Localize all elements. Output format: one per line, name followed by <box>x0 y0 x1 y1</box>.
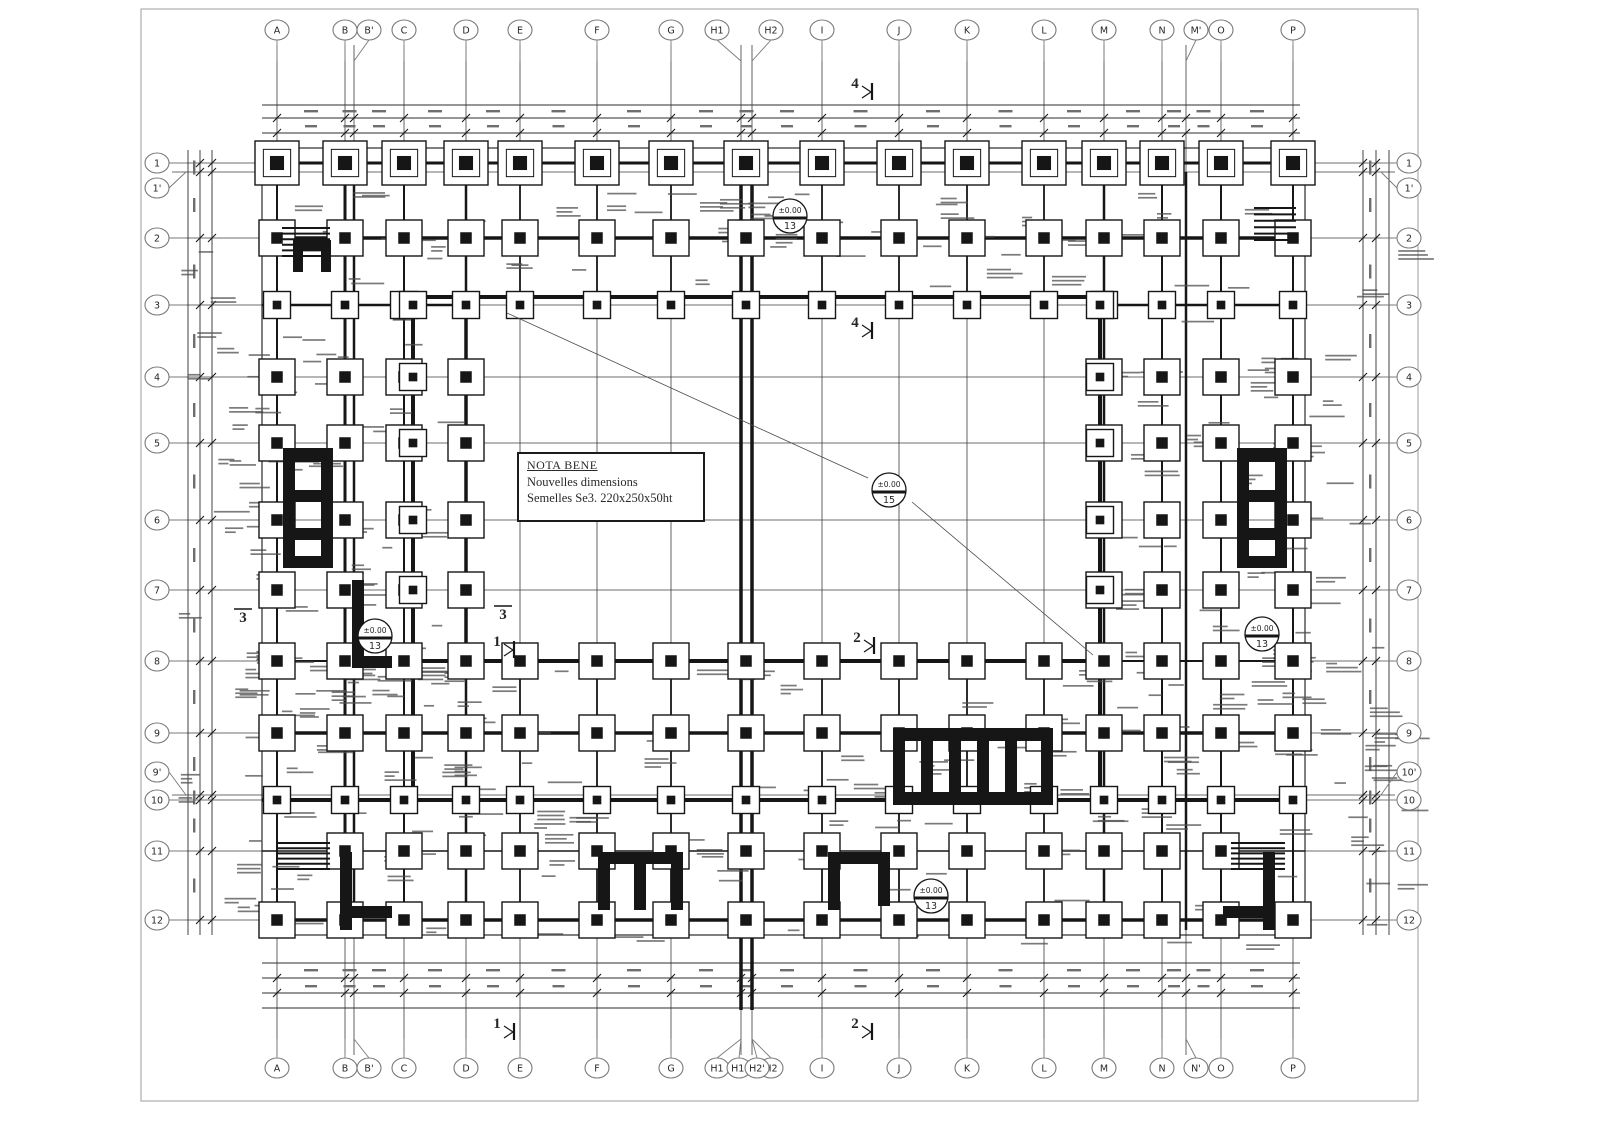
micro-annotation <box>382 547 392 549</box>
micro-annotation <box>245 775 263 777</box>
dimension-value-mark <box>373 985 385 987</box>
micro-annotation <box>1261 358 1275 360</box>
micro-annotation <box>1302 702 1326 704</box>
micro-annotation <box>781 693 791 695</box>
column-stub <box>409 301 418 310</box>
grid-bubble-label: E <box>517 1064 523 1075</box>
micro-annotation <box>297 879 309 881</box>
micro-annotation <box>225 531 236 533</box>
micro-annotation <box>352 568 371 570</box>
column-stub <box>1040 301 1049 310</box>
micro-annotation <box>887 889 911 891</box>
column-stub <box>1156 437 1168 449</box>
micro-annotation <box>1258 703 1294 705</box>
section-marker-label: 1 <box>493 1016 501 1032</box>
micro-annotation <box>1138 193 1155 195</box>
grid-bubble-label: 9 <box>1406 729 1412 740</box>
micro-annotation <box>1138 197 1157 199</box>
micro-annotation <box>1280 833 1313 835</box>
core-wall <box>598 852 683 864</box>
micro-annotation <box>1052 280 1084 282</box>
micro-annotation <box>295 209 322 211</box>
micro-annotation <box>1168 684 1183 686</box>
micro-annotation <box>1398 258 1434 260</box>
micro-annotation <box>770 246 786 248</box>
micro-annotation <box>1213 708 1245 710</box>
column-stub <box>739 156 753 170</box>
grid-bubble-label: E <box>517 26 523 37</box>
micro-annotation <box>1177 773 1200 775</box>
micro-annotation <box>1052 284 1081 286</box>
micro-annotation <box>1175 285 1210 287</box>
column-stub <box>409 439 418 448</box>
micro-annotation <box>1348 816 1367 818</box>
grid-bubble-label: A <box>274 1064 281 1075</box>
micro-annotation <box>1139 546 1161 548</box>
column-stub <box>398 727 410 739</box>
micro-annotation <box>235 692 257 694</box>
column-stub <box>1287 514 1299 526</box>
core-wall <box>321 250 331 272</box>
section-marker-label: 1 <box>493 634 501 650</box>
micro-annotation <box>332 695 355 697</box>
column-stub <box>1096 516 1105 525</box>
micro-annotation <box>700 210 734 212</box>
micro-annotation <box>225 902 239 904</box>
micro-annotation <box>1145 475 1180 477</box>
grid-bubble-label: 1' <box>1405 184 1414 195</box>
column-stub <box>409 373 418 382</box>
column-stub <box>1215 232 1227 244</box>
grid-bubble-label: 10' <box>1402 768 1417 779</box>
micro-annotation <box>829 820 848 822</box>
micro-annotation <box>1261 362 1274 364</box>
column-stub <box>271 914 283 926</box>
grid-bubble-label: K <box>964 1064 971 1075</box>
micro-annotation <box>1228 287 1250 289</box>
micro-annotation <box>700 202 727 204</box>
micro-annotation <box>1370 715 1403 717</box>
dimension-value-mark <box>927 985 939 987</box>
level-marker-value: ±0.00 <box>1251 624 1274 633</box>
column-stub <box>271 655 283 667</box>
micro-annotation <box>549 860 575 862</box>
grid-bubble-label: 7 <box>1406 586 1412 597</box>
dimension-value-mark <box>1369 757 1371 771</box>
micro-annotation <box>1187 439 1198 441</box>
micro-annotation <box>875 827 900 829</box>
micro-annotation <box>1350 523 1371 525</box>
micro-annotation <box>431 683 449 685</box>
micro-annotation <box>1278 876 1297 878</box>
micro-annotation <box>1275 753 1302 755</box>
column-stub <box>895 301 904 310</box>
micro-annotation <box>925 823 953 825</box>
column-stub <box>591 232 603 244</box>
micro-annotation <box>1398 250 1425 252</box>
column-stub <box>273 796 282 805</box>
grid-bubble-label: 6 <box>1406 516 1412 527</box>
micro-annotation <box>385 779 417 781</box>
micro-annotation <box>385 771 399 773</box>
micro-annotation <box>179 613 190 615</box>
micro-annotation <box>1177 769 1193 771</box>
dimension-value-mark <box>193 403 195 417</box>
micro-annotation <box>445 680 466 682</box>
micro-annotation <box>181 778 192 780</box>
dimension-value-mark <box>1126 969 1140 971</box>
column-stub <box>1214 156 1228 170</box>
grid-bubble-label: M <box>1100 26 1108 37</box>
section-marker-label: 2 <box>851 1016 859 1032</box>
core-wall <box>893 792 1053 805</box>
column-stub <box>1038 655 1050 667</box>
dimension-value-mark <box>699 969 713 971</box>
column-stub <box>460 655 472 667</box>
grid-bubble-label: H2' <box>749 1064 765 1075</box>
micro-annotation <box>393 319 411 321</box>
core-wall <box>1249 528 1275 540</box>
bubble-leader <box>354 1039 369 1058</box>
dimension-value-mark <box>344 125 356 127</box>
dimension-value-mark <box>999 969 1013 971</box>
micro-annotation <box>1060 793 1089 795</box>
micro-annotation <box>318 751 353 753</box>
micro-annotation <box>537 815 563 817</box>
micro-annotation <box>941 198 957 200</box>
column-stub <box>591 914 603 926</box>
column-stub <box>514 727 526 739</box>
micro-annotation <box>645 762 677 764</box>
core-wall <box>828 864 840 910</box>
column-stub <box>816 232 828 244</box>
column-stub <box>1215 437 1227 449</box>
micro-annotation <box>1213 626 1228 628</box>
level-marker-number: 13 <box>925 901 937 912</box>
micro-annotation <box>545 842 574 844</box>
micro-annotation <box>492 686 516 688</box>
column-stub <box>1215 655 1227 667</box>
micro-annotation <box>702 856 723 858</box>
micro-annotation <box>697 669 728 671</box>
core-wall <box>293 250 303 272</box>
dimension-value-mark <box>372 110 386 112</box>
section-flag-icon <box>862 86 871 98</box>
core-wall <box>949 740 961 792</box>
micro-annotation <box>1060 789 1082 791</box>
micro-annotation <box>1209 422 1230 424</box>
micro-annotation <box>181 782 193 784</box>
grid-bubble-label: L <box>1041 26 1047 37</box>
micro-annotation <box>542 875 556 877</box>
dimension-value-mark <box>741 125 753 127</box>
dimension-value-mark <box>627 969 641 971</box>
grid-bubble-label: G <box>667 26 674 37</box>
leader-line <box>912 502 1093 655</box>
micro-annotation <box>431 246 446 248</box>
micro-annotation <box>405 344 422 346</box>
micro-annotation <box>284 816 316 818</box>
micro-annotation <box>181 270 198 272</box>
core-wall <box>1005 740 1017 792</box>
micro-annotation <box>690 839 705 841</box>
dimension-value-mark <box>780 110 794 112</box>
micro-annotation <box>1362 289 1377 291</box>
micro-annotation <box>1370 707 1388 709</box>
column-stub <box>740 914 752 926</box>
micro-annotation <box>225 527 243 529</box>
column-stub <box>1156 514 1168 526</box>
dimension-value-mark <box>999 110 1013 112</box>
micro-annotation <box>300 708 330 710</box>
micro-annotation <box>1157 217 1168 219</box>
micro-annotation <box>1252 685 1288 687</box>
grid-bubble-label: G <box>667 1064 674 1075</box>
micro-annotation <box>1164 757 1199 759</box>
column-stub <box>271 584 283 596</box>
micro-annotation <box>390 408 403 410</box>
dimension-value-mark <box>854 969 868 971</box>
micro-annotation <box>1351 836 1369 838</box>
bubble-leader <box>354 40 369 61</box>
dimension-value-mark <box>193 879 195 893</box>
micro-annotation <box>545 834 573 836</box>
micro-annotation <box>1323 404 1342 406</box>
column-stub <box>460 584 472 596</box>
section-marker-label: 3 <box>239 610 247 626</box>
micro-annotation <box>1125 652 1137 654</box>
micro-annotation <box>1248 369 1269 371</box>
dimension-value-mark <box>343 110 357 112</box>
column-stub <box>1156 232 1168 244</box>
column-stub <box>1156 655 1168 667</box>
dimension-value-mark <box>1068 125 1080 127</box>
column-stub <box>1098 845 1110 857</box>
column-stub <box>341 796 350 805</box>
column-stub <box>1097 156 1111 170</box>
grid-bubble-label: I <box>821 1064 824 1075</box>
core-wall <box>977 740 989 792</box>
grid-bubble-label: C <box>401 1064 408 1075</box>
micro-annotation <box>717 870 748 872</box>
micro-annotation <box>179 801 194 803</box>
core-wall <box>828 852 890 864</box>
column-stub <box>1156 584 1168 596</box>
grid-bubble-label: F <box>594 1064 599 1075</box>
column-stub <box>1100 796 1109 805</box>
grid-bubble-label: 5 <box>1406 439 1412 450</box>
column-stub <box>1158 796 1167 805</box>
column-stub <box>397 156 411 170</box>
column-stub <box>400 796 409 805</box>
micro-annotation <box>287 771 314 773</box>
dimension-value-mark <box>780 969 794 971</box>
micro-annotation <box>1311 602 1341 604</box>
micro-annotation <box>179 617 202 619</box>
dimension-value-mark <box>628 125 640 127</box>
micro-annotation <box>1248 576 1259 578</box>
micro-annotation <box>556 211 572 213</box>
column-stub <box>893 655 905 667</box>
dimension-value-mark <box>700 985 712 987</box>
column-stub <box>514 232 526 244</box>
micro-annotation <box>249 354 270 356</box>
column-stub <box>816 914 828 926</box>
column-stub <box>1156 371 1168 383</box>
dimension-value-mark <box>305 125 317 127</box>
micro-annotation <box>700 206 723 208</box>
grid-bubble-label: 10 <box>1403 796 1415 807</box>
micro-annotation <box>438 421 466 423</box>
micro-annotation <box>1258 699 1274 701</box>
dimension-value-mark <box>193 265 195 279</box>
dimension-value-mark <box>428 969 442 971</box>
column-stub <box>1096 586 1105 595</box>
column-stub <box>664 156 678 170</box>
column-stub <box>892 156 906 170</box>
micro-annotation <box>1142 816 1172 818</box>
grid-bubble-label: N <box>1158 26 1165 37</box>
micro-annotation <box>303 361 321 363</box>
dimension-value-mark <box>1250 969 1264 971</box>
micro-annotation <box>239 487 269 489</box>
grid-bubble-label: 11 <box>151 847 163 858</box>
micro-annotation <box>348 682 359 684</box>
grid-bubble-label: B <box>342 26 349 37</box>
micro-annotation <box>1145 471 1179 473</box>
column-stub <box>1156 845 1168 857</box>
micro-annotation <box>1024 783 1036 785</box>
micro-annotation <box>1149 694 1162 696</box>
grid-bubble-label: 12 <box>151 916 163 927</box>
column-stub <box>665 655 677 667</box>
micro-annotation <box>432 625 442 627</box>
core-wall <box>878 864 890 906</box>
column-stub <box>460 437 472 449</box>
column-stub <box>1158 301 1167 310</box>
micro-annotation <box>422 667 446 669</box>
micro-annotation <box>217 352 239 354</box>
micro-annotation <box>1321 729 1341 731</box>
dimension-value-mark <box>486 110 500 112</box>
section-flag-icon <box>504 1026 513 1038</box>
column-stub <box>460 845 472 857</box>
column-stub <box>1287 371 1299 383</box>
micro-annotation <box>1373 765 1392 767</box>
section-flag-icon <box>864 640 873 652</box>
micro-annotation <box>235 688 248 690</box>
micro-annotation <box>635 212 663 214</box>
micro-annotation <box>332 699 347 701</box>
micro-annotation <box>1252 681 1285 683</box>
core-wall <box>295 448 321 462</box>
micro-annotation <box>776 242 793 244</box>
micro-annotation <box>776 234 798 236</box>
dimension-value-mark <box>1369 819 1371 833</box>
micro-annotation <box>237 872 261 874</box>
blueprint-canvas: ±0.0013±0.0015±0.0013±0.0013±0.001344211… <box>0 0 1600 1128</box>
column-stub <box>665 727 677 739</box>
micro-annotation <box>1365 749 1379 751</box>
column-stub <box>818 796 827 805</box>
micro-annotation <box>459 816 473 818</box>
micro-annotation <box>607 193 636 195</box>
bubble-leader <box>169 172 186 188</box>
micro-annotation <box>549 864 564 866</box>
column-stub <box>514 845 526 857</box>
micro-annotation <box>720 199 742 201</box>
grid-bubble-label: 7 <box>154 586 160 597</box>
dimension-value-mark <box>1369 403 1371 417</box>
micro-annotation <box>1138 405 1169 407</box>
column-stub <box>398 232 410 244</box>
grid-bubble-label: H2 <box>764 26 777 37</box>
micro-annotation <box>1398 884 1428 886</box>
micro-annotation <box>1316 577 1346 579</box>
grid-bubble-label: H1 <box>710 26 723 37</box>
grid-bubble-label: 10 <box>151 796 163 807</box>
grid-bubble-label: O <box>1217 1064 1224 1075</box>
micro-annotation <box>1125 589 1146 591</box>
dimension-value-mark <box>854 110 868 112</box>
dimension-value-mark <box>552 969 566 971</box>
micro-annotation <box>1166 828 1188 830</box>
micro-annotation <box>720 207 745 209</box>
dimension-value-mark <box>1369 334 1371 348</box>
dimension-value-mark <box>193 819 195 833</box>
micro-annotation <box>424 705 434 707</box>
micro-annotation <box>1213 704 1247 706</box>
column-stub <box>271 232 283 244</box>
dimension-value-mark <box>1167 969 1181 971</box>
micro-annotation <box>239 483 259 485</box>
micro-annotation <box>841 759 864 761</box>
micro-annotation <box>1213 630 1240 632</box>
micro-annotation <box>1326 663 1337 665</box>
micro-annotation <box>295 205 323 207</box>
column-stub <box>1287 727 1299 739</box>
micro-annotation <box>372 690 389 692</box>
micro-annotation <box>247 526 259 528</box>
micro-annotation <box>1087 681 1113 683</box>
micro-annotation <box>237 864 261 866</box>
column-stub <box>1096 301 1105 310</box>
dimension-value-mark <box>1167 110 1181 112</box>
column-stub <box>341 301 350 310</box>
column-stub <box>1287 437 1299 449</box>
micro-annotation <box>1323 400 1334 402</box>
column-stub <box>740 232 752 244</box>
grid-bubble-label: I <box>821 26 824 37</box>
micro-annotation <box>548 781 582 783</box>
nota-bene-title: NOTA BENE <box>527 458 695 473</box>
micro-annotation <box>569 817 598 819</box>
micro-annotation <box>930 286 951 288</box>
micro-annotation <box>1251 382 1275 384</box>
micro-annotation <box>310 666 327 668</box>
micro-annotation <box>1245 209 1269 211</box>
dimension-value-mark <box>486 969 500 971</box>
micro-annotation <box>238 907 250 909</box>
micro-annotation <box>388 876 411 878</box>
micro-annotation <box>272 866 299 868</box>
micro-annotation <box>1326 671 1361 673</box>
dimension-value-mark <box>1198 125 1210 127</box>
grid-bubble-label: 1 <box>154 159 160 170</box>
column-stub <box>271 727 283 739</box>
core-wall <box>1237 448 1249 568</box>
micro-annotation <box>237 868 260 870</box>
